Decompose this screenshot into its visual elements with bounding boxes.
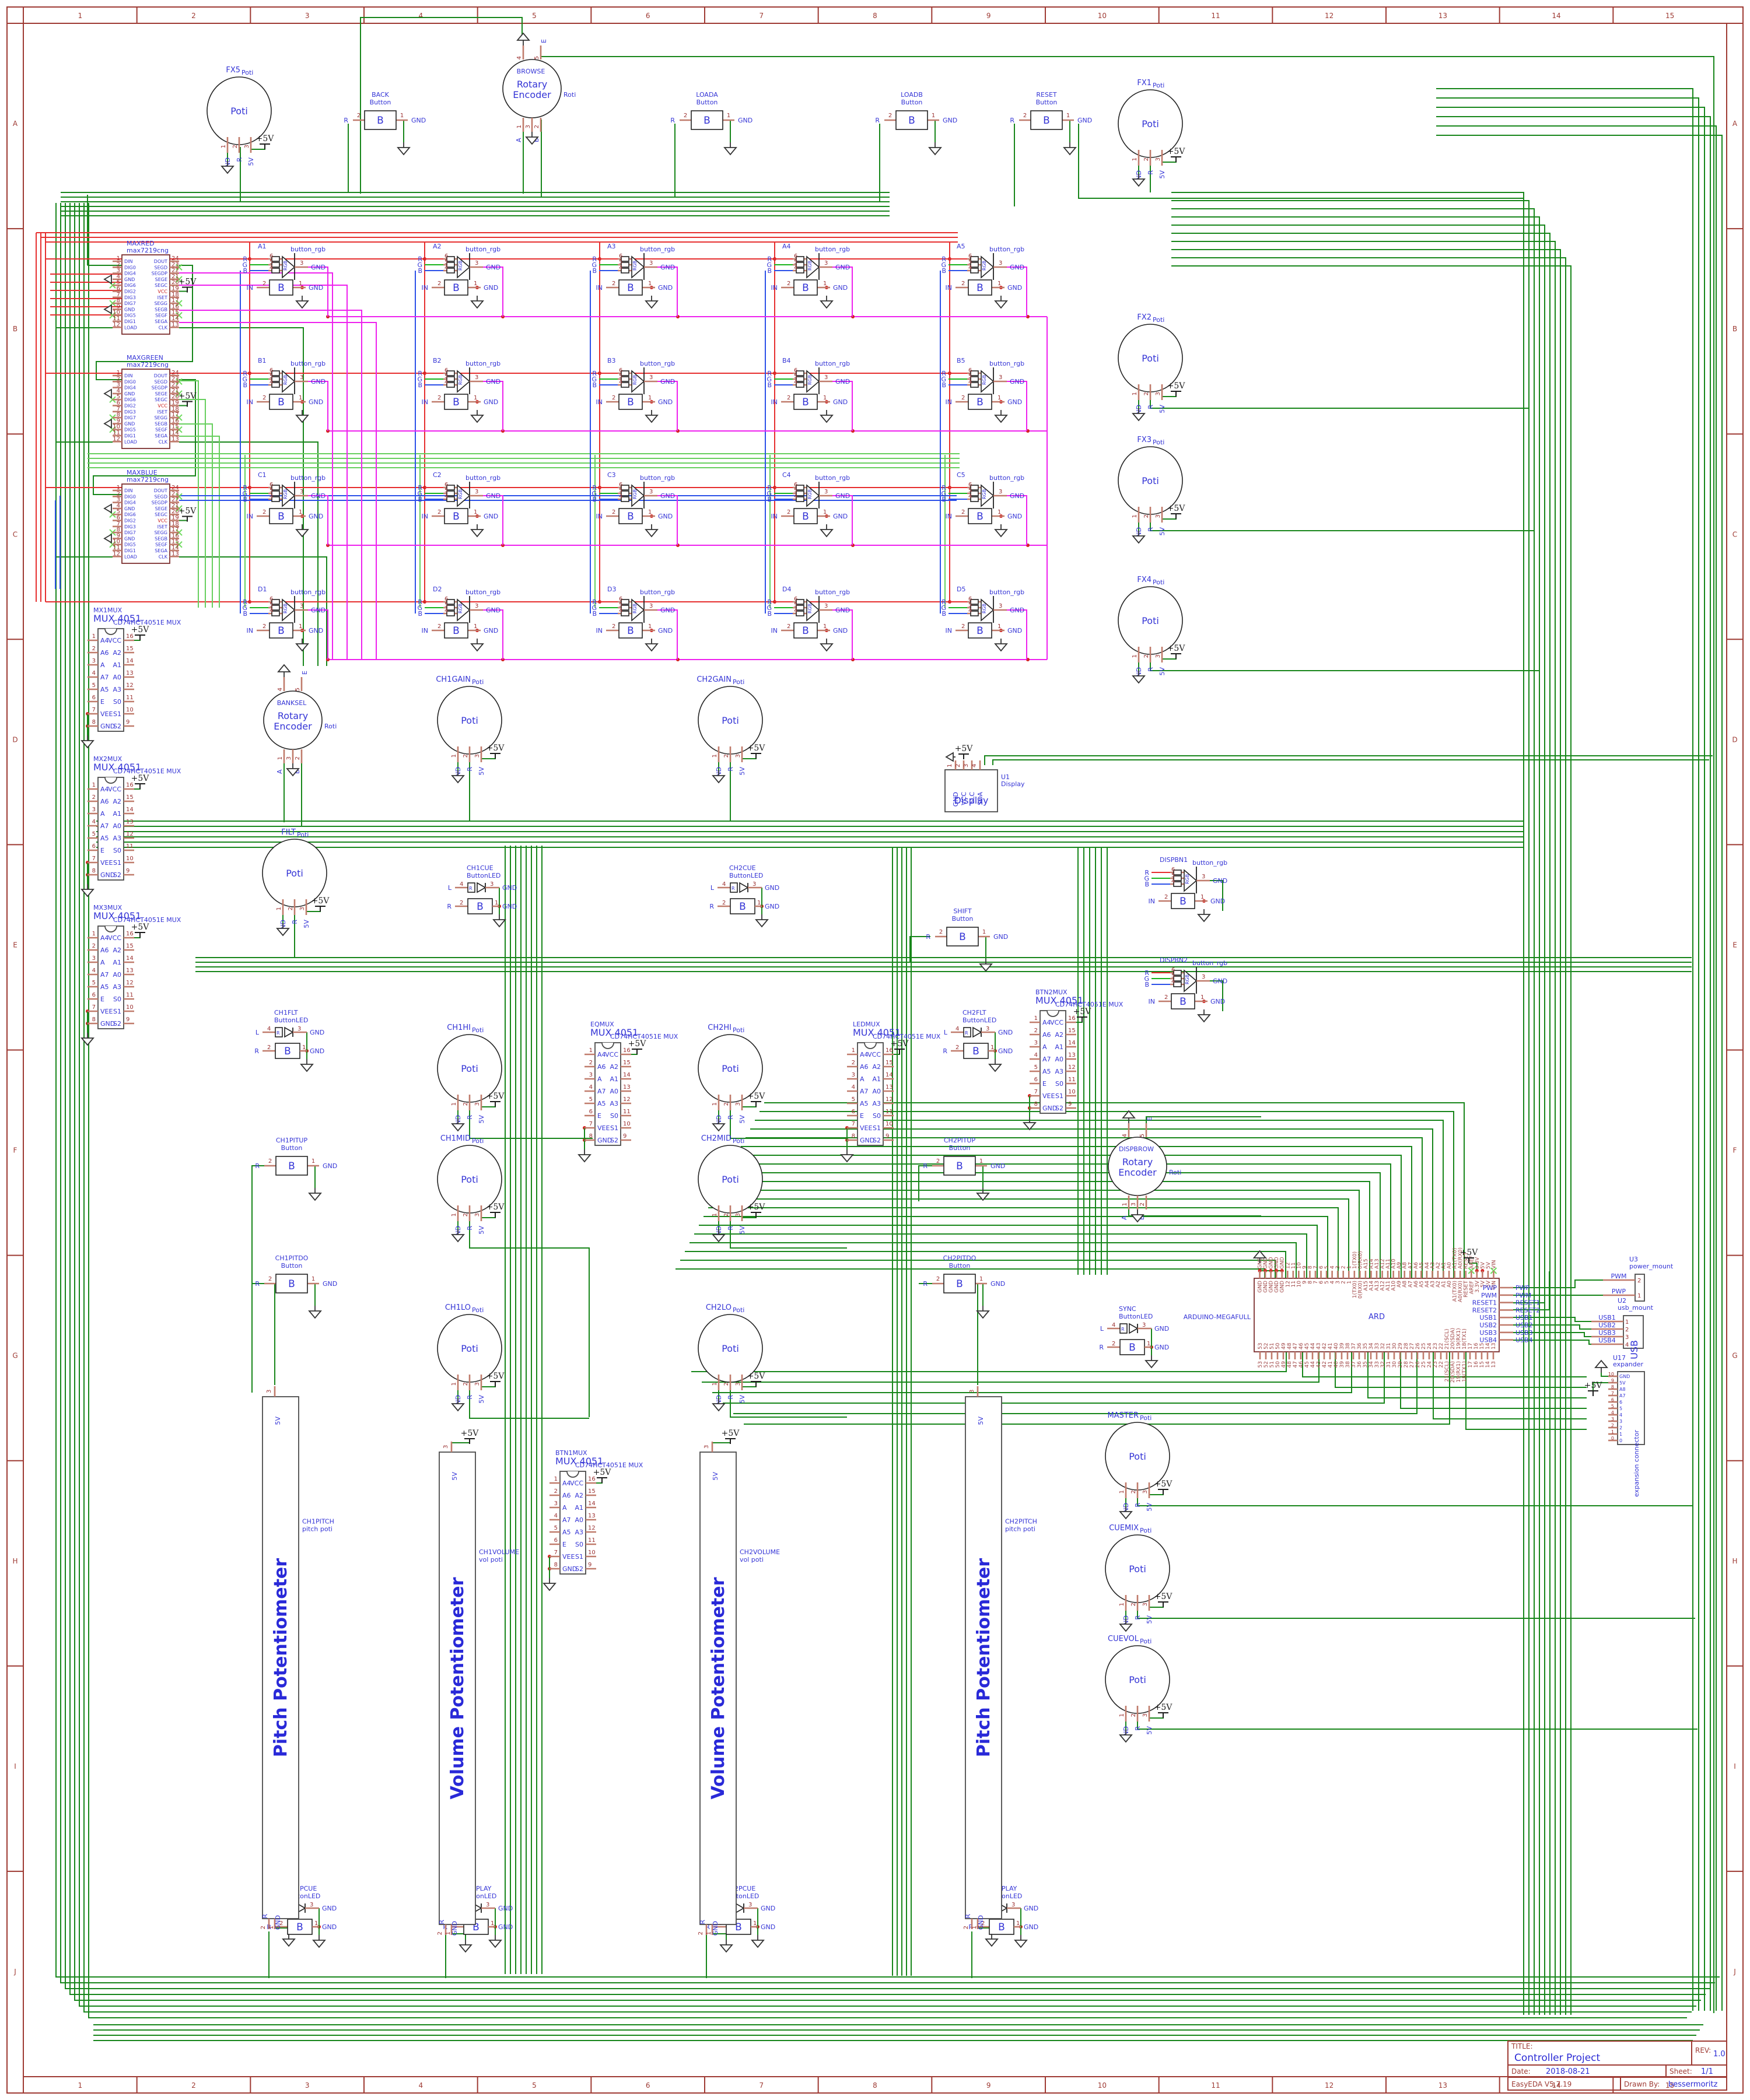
mux4051-mx1mux[interactable]: MX1MUXMUX 4051CD74HCT4051E MUX1A416VCC2A… (82, 606, 181, 748)
poti-master[interactable]: PotiMASTERPoti1GND2R35V+5V (1105, 1411, 1172, 1519)
pin-name: R (466, 767, 474, 772)
button-ch1pitup[interactable]: CH1PITUPButtonB21RGND (255, 1137, 337, 1200)
pin-number: 3 (752, 881, 756, 888)
wire-segment[interactable] (1150, 652, 1539, 671)
pin-name: DIG5 (124, 313, 136, 318)
pin-number: 2 (787, 623, 790, 630)
rgb-button-dispbn1[interactable]: DISPBN1button_rgb6R5G4BRGB3GNDB21INGND (1144, 856, 1227, 921)
wire-segment[interactable] (1007, 381, 1027, 431)
components-layer: PotiFX5Poti1GND2R35V+5VPotiFX1Poti1GND2R… (82, 33, 1674, 1952)
slider-value: Volume Potentiometer (708, 1577, 729, 1799)
pin-number: 15 (588, 1488, 596, 1495)
rgb-button-c5[interactable]: C5button_rgb6R5G4BRGB3GNDB21INGND (941, 471, 1024, 537)
gnd-symbol (720, 1940, 732, 1952)
pin-name: DIG7 (124, 530, 136, 535)
wire-segment[interactable] (179, 399, 205, 608)
poti-cuemix[interactable]: PotiCUEMIXPoti1GND2R35V+5V (1105, 1524, 1172, 1631)
pin-name: GND (486, 492, 501, 500)
pin-name: R (1134, 1615, 1142, 1620)
ruler-row-label: H (12, 1557, 17, 1565)
designator: CH1PITUP (276, 1137, 308, 1144)
ruler-row-label: G (12, 1352, 17, 1360)
pin-name: S1 (113, 710, 121, 718)
button-ch1pitdo[interactable]: CH1PITDOButtonB21RGND (255, 1254, 337, 1318)
designator: CH2VOLUME (740, 1548, 780, 1556)
wire-segment[interactable] (750, 1129, 1433, 1278)
expansion-connector-u17[interactable]: U17expander10GND95V8A87A766554433221100e… (1584, 1354, 1644, 1497)
pin-name: A0 (113, 971, 121, 979)
pin-name: GND (1007, 627, 1022, 634)
rgb-button-d1[interactable]: D1button_rgb6R5G4BRGB3GNDB21INGND (242, 586, 325, 651)
poti-cuevol[interactable]: PotiCUEVOLPoti1GND2R35V+5V (1105, 1635, 1172, 1742)
rgb-button-a2[interactable]: A2button_rgb6R5G4BRGB3GNDB21INGND (417, 243, 501, 308)
pin-name: 1(TX0) (1352, 1251, 1358, 1269)
rgb-button-c4[interactable]: C4button_rgb6R5G4BRGB3GNDB21INGND (766, 471, 850, 537)
wire-segment[interactable] (1150, 390, 1529, 408)
wire-segment[interactable] (470, 1382, 589, 1418)
button-led-ch1cue[interactable]: CH1CUEButtonLEDL4R3GNDR2B1GND (447, 864, 517, 927)
pin-name: GND (124, 421, 135, 426)
wire-segment[interactable] (1162, 654, 1176, 659)
part-label: Roti (324, 723, 337, 730)
pin-name: GND (658, 284, 673, 292)
part-name: button_rgb (290, 360, 325, 367)
rgb-button-a1[interactable]: A1button_rgb6R5G4BRGB3GNDB21INGND (242, 243, 325, 308)
part-name: button_rgb (1192, 859, 1227, 867)
rgb-button-d2[interactable]: D2button_rgb6R5G4BRGB3GNDB21INGND (417, 586, 501, 651)
part-name: Encoder (274, 721, 312, 732)
wire-segment[interactable] (832, 610, 852, 660)
plus5v-label: +5V (1167, 644, 1186, 653)
pin-name: 1 (1346, 1281, 1352, 1284)
wire-segment[interactable] (1007, 496, 1027, 545)
pin-name: 18(TX1) (1462, 1328, 1468, 1349)
wire-segment[interactable] (596, 1478, 602, 1483)
pin-name: 26 (1415, 1361, 1421, 1368)
wire-segment[interactable] (712, 1439, 730, 1443)
wire-segment[interactable] (1076, 1018, 1082, 1022)
pin-number: 8 (1034, 1101, 1038, 1107)
wire-segment[interactable] (1137, 1712, 1697, 1729)
gnd-symbol (452, 770, 464, 783)
pin-number: 10 (588, 1549, 596, 1556)
plus5v-symbol: +5V (1584, 1381, 1603, 1396)
gnd-symbol (646, 410, 657, 422)
button-symbol: B (802, 625, 809, 637)
pin-name: A15 (1363, 1258, 1369, 1269)
rgb-button-dispbn2[interactable]: DISPBN2button_rgb6R5G4BRGB3GNDB21INGND (1144, 956, 1227, 1022)
button-ch2pitdo[interactable]: CH2PITDOButtonB21RGND (923, 1254, 1005, 1318)
wire-segment[interactable] (1401, 1352, 1587, 1408)
plus5v-symbol: +5V (593, 1468, 612, 1483)
pin-name: 5V (977, 1417, 985, 1425)
button-led-sync[interactable]: SYNCButtonLEDL4R3GNDR2B1GND (1099, 1305, 1169, 1368)
pin-name: DIG4 (124, 271, 136, 276)
rotary-encoder-banksel[interactable]: BANKSELRotaryEncoderRoti45E132AB (264, 665, 337, 776)
pin-name: SEGB (155, 536, 167, 541)
pin-name: L (1100, 1325, 1104, 1333)
wire-segment[interactable] (1149, 1490, 1163, 1495)
button-led-ch1flt[interactable]: CH1FLTButtonLEDL4R3GNDR2B1GND (254, 1009, 324, 1071)
wire-segment[interactable] (483, 381, 503, 431)
poti-value: Poti (1142, 615, 1159, 626)
wire-segment[interactable] (1146, 1117, 1261, 1136)
pin-number: 7 (1034, 1089, 1038, 1095)
poti-fx3[interactable]: PotiFX3Poti1GND2R35V+5V (1118, 436, 1185, 543)
pin-number: 3 (735, 1382, 741, 1386)
poti-fx2[interactable]: PotiFX2Poti1GND2R35V+5V (1118, 313, 1185, 420)
pin-name: GND (124, 506, 135, 511)
plus5v-symbol: +5V (747, 1202, 766, 1218)
wire-segment[interactable] (134, 784, 140, 789)
rgb-button-d5[interactable]: D5button_rgb6R5G4BRGB3GNDB21INGND (941, 586, 1024, 651)
wire-segment[interactable] (481, 1213, 495, 1218)
wire-segment[interactable] (1171, 250, 1560, 2015)
pin-number: 2 (939, 929, 943, 935)
pin-number: 7 (554, 1549, 558, 1556)
pin-number: 3 (474, 754, 481, 758)
pin-number: 1 (1200, 994, 1204, 1001)
wire-segment[interactable] (832, 267, 852, 317)
rgb-button-a4[interactable]: A4button_rgb6R5G4BRGB3GNDB21INGND (766, 243, 850, 308)
wire-segment[interactable] (1601, 1373, 1608, 1376)
pin-number: 9 (126, 1016, 129, 1023)
wire-segment[interactable] (1171, 201, 1529, 2015)
rgb-button-c2[interactable]: C2button_rgb6R5G4BRGB3GNDB21INGND (417, 471, 501, 537)
pin-name: SEGDP (152, 271, 167, 276)
pin-name: S0 (610, 1112, 618, 1120)
wire-segment[interactable] (723, 1352, 1384, 1403)
pin-number: 2 (1143, 654, 1150, 658)
gnd-up-symbol (278, 665, 290, 677)
wire-segment[interactable] (685, 1251, 1286, 1278)
pin-name: R (727, 1115, 734, 1120)
wire-segment[interactable] (179, 517, 187, 521)
rgb-button-b4[interactable]: B4button_rgb6R5G4BRGB3GNDB21INGND (766, 357, 850, 422)
pin-number: 2 (1625, 1327, 1629, 1333)
pin-number: 2 (612, 281, 615, 287)
wire-segment[interactable] (832, 381, 852, 431)
pin-number: 8 (852, 1133, 855, 1140)
poti-ch1gain[interactable]: PotiCH1GAINPoti1GND2R35V+5V (436, 675, 505, 783)
pin-number: 11 (588, 1537, 596, 1544)
wire-segment[interactable] (452, 1439, 470, 1443)
pin-number: 2 (612, 395, 615, 401)
slide-potentiometer-ch1pitch[interactable]: Pitch Potentiometer35V21RGNDCH1PITCHpitc… (260, 1386, 334, 1946)
wire-segment[interactable] (252, 1166, 264, 1393)
wire-segment[interactable] (308, 381, 328, 431)
pin-name: A1 (113, 810, 121, 818)
wire-segment[interactable] (1007, 267, 1027, 317)
part-name: Poti (1140, 1527, 1151, 1534)
wire-segment[interactable] (1137, 1601, 1695, 1618)
pin-number: 3 (999, 260, 1002, 267)
pin-name: A (1121, 1215, 1128, 1220)
gnd-symbol (1133, 408, 1144, 420)
gnd-symbol (460, 1940, 471, 1952)
pin-number: 3 (824, 603, 828, 609)
wire-segment[interactable] (1171, 233, 1550, 2015)
wire-segment[interactable] (306, 907, 320, 911)
pin-name: 5 (1324, 1281, 1330, 1284)
pin-number: 4 (968, 493, 972, 500)
wire-segment[interactable] (179, 402, 187, 406)
wire-segment[interactable] (481, 1102, 495, 1107)
designator: FX1 (1137, 79, 1151, 87)
button-led-ch2flt[interactable]: CH2FLTButtonLEDL4R3GNDR2B1GND (943, 1009, 1013, 1071)
arduino-mega-ard[interactable]: ARDARDUINO-MEGAFULLGNDGNDGNDGNDGNDGNDGND… (1184, 1247, 1540, 1383)
wire-segment[interactable] (1436, 117, 1710, 2011)
button-shift[interactable]: SHIFTButtonB21RGND (926, 907, 1008, 971)
rgb-button-a5[interactable]: A5button_rgb6R5G4BRGB3GNDB21INGND (941, 243, 1024, 308)
wire-segment[interactable] (1171, 266, 1571, 2015)
plus5v-label: +5V (178, 278, 197, 287)
wire-segment[interactable] (702, 1352, 1319, 1382)
gnd-symbol (977, 1306, 989, 1318)
wire-segment[interactable] (1007, 610, 1027, 660)
mux4051-ledmux[interactable]: LEDMUXMUX 4051CD74HCT4051E MUX1A416VCC2A… (841, 1021, 941, 1162)
poti-value: Poti (1142, 118, 1159, 129)
wire-segment[interactable] (742, 754, 756, 759)
rgb-button-b2[interactable]: B2button_rgb6R5G4BRGB3GNDB21INGND (417, 357, 501, 422)
pin-name: 30 (1392, 1342, 1398, 1349)
wire-segment[interactable] (741, 1147, 1412, 1278)
pin-name: R (1147, 667, 1154, 672)
pin-number: 2 (612, 509, 615, 516)
wire-segment[interactable] (742, 1382, 756, 1387)
wire-segment[interactable] (1171, 192, 1524, 2015)
poti-ch2lo[interactable]: PotiCH2LOPoti1GND2R35V+5V (698, 1303, 765, 1411)
ruler-col-label: 8 (873, 12, 877, 20)
wire-segment[interactable] (1171, 217, 1539, 2015)
pin-name: A15 (1363, 1281, 1369, 1291)
wire-segment[interactable] (1150, 512, 1534, 531)
rgb-button-b3[interactable]: B3button_rgb6R5G4BRGB3GNDB21INGND (591, 357, 675, 422)
gnd-symbol (1198, 909, 1210, 921)
net-name: USB3 (1479, 1329, 1497, 1337)
pin-number: 2 (534, 125, 540, 128)
designator: SYNC (1119, 1305, 1136, 1313)
poti-ch1hi[interactable]: PotiCH1HIPoti1GND2R35V+5V (437, 1023, 505, 1131)
pin-number: 2 (463, 1102, 469, 1106)
pin-number: 1 (712, 1102, 718, 1106)
wire-segment[interactable] (631, 1050, 637, 1054)
pin-name: 10 (1296, 1262, 1302, 1269)
pin-number: 2 (1143, 514, 1150, 518)
pin-name: GND (484, 627, 498, 634)
drawn-by-label: Drawn By: (1624, 2080, 1660, 2088)
pin-number: 12 (885, 1096, 893, 1103)
mux4051-mx3mux[interactable]: MX3MUXMUX 4051CD74HCT4051E MUX1A416VCC2A… (82, 904, 181, 1045)
poti-ch2hi[interactable]: PotiCH2HIPoti1GND2R35V+5V (698, 1023, 765, 1131)
pin-name: A (515, 138, 523, 142)
pin-number: 3 (1034, 1040, 1038, 1046)
plus5v-symbol: +5V (1073, 1007, 1092, 1022)
wire-segment[interactable] (713, 1199, 1349, 1278)
pin-name: 18(TX1) (1462, 1361, 1468, 1382)
usb-mount-u2[interactable]: U2usb_mountUSB11USB22USB33USB44USB (1591, 1297, 1654, 1359)
pin-number: 2 (1637, 1278, 1641, 1284)
wire-segment[interactable] (993, 760, 1709, 765)
button-symbol: B (739, 901, 746, 913)
rotary-encoder-dispbrow[interactable]: DISPBROWRotaryEncoderRoti45E132AB (1108, 1111, 1181, 1222)
wire-segment[interactable] (308, 267, 328, 317)
power-mount-u3[interactable]: U3power_mountPWM2PWP1 (1603, 1256, 1674, 1301)
wire-segment[interactable] (691, 1352, 1286, 1372)
button-back[interactable]: BACKButtonB21RGND (344, 91, 426, 155)
rgb-button-d4[interactable]: D4button_rgb6R5G4BRGB3GNDB21INGND (766, 586, 850, 651)
poti-ch2gain[interactable]: PotiCH2GAINPoti1GND2R35V+5V (696, 675, 765, 783)
pin-name: R (727, 1226, 734, 1230)
mux4051-btn2mux[interactable]: BTN2MUXMUX 4051CD74HCT4051E MUX1A416VCC2… (1024, 988, 1123, 1130)
max7219-maxgreen[interactable]: MAXGREENmax7219cng1DIN24DOUT2DIG023SEGD3… (104, 354, 197, 448)
drawn-by-value: bessermoritz (1668, 2080, 1718, 2089)
slide-potentiometer-ch2volume[interactable]: Volume Potentiometer35V+5V21RGNDCH2VOLUM… (698, 1429, 780, 1952)
wire-segment[interactable] (483, 496, 503, 545)
pin-name: 5V (478, 1115, 485, 1124)
pin-number: 2 (268, 1158, 272, 1165)
wire-segment[interactable] (179, 557, 327, 666)
pin-number: 3 (1202, 874, 1205, 880)
pin-number: 1 (1147, 1341, 1150, 1347)
wire-segment[interactable] (919, 1166, 932, 1201)
poti-value: Poti (1129, 1674, 1146, 1685)
wire-segment[interactable] (65, 203, 1710, 1989)
wire-segment[interactable] (1149, 1713, 1163, 1718)
wire-segment[interactable] (134, 636, 140, 640)
max7219-maxblue[interactable]: MAXBLUEmax7219cng1DIN24DOUT2DIG023SEGD3D… (104, 469, 197, 563)
pin-number: 4 (794, 608, 797, 614)
mux4051-eqmux[interactable]: EQMUXMUX 4051CD74HCT4051E MUX1A416VCC2A6… (579, 1021, 678, 1162)
pin-name: 35 (1363, 1343, 1368, 1349)
pin-name: E (100, 847, 104, 854)
rotary-encoder-browse[interactable]: BROWSERotaryEncoderRoti45E132AB (503, 33, 576, 144)
wire-segment[interactable] (481, 754, 495, 759)
poti-ch1lo[interactable]: PotiCH1LOPoti1GND2R35V+5V (437, 1303, 505, 1411)
wire-segment[interactable] (1210, 981, 1223, 1011)
rgb-button-c1[interactable]: C1button_rgb6R5G4BRGB3GNDB21INGND (242, 471, 325, 537)
pin-name: 42 (1322, 1361, 1328, 1368)
button-loada[interactable]: LOADAButtonB21RGND (670, 91, 752, 155)
wire-segment[interactable] (1162, 514, 1176, 519)
rgb-button-d3[interactable]: D3button_rgb6R5G4BRGB3GNDB21INGND (591, 586, 675, 651)
pin-name: 43 (1316, 1361, 1322, 1368)
pin-number: 8 (589, 1133, 593, 1140)
wire-segment[interactable] (483, 267, 503, 317)
poti-filt[interactable]: PotiFILTPoti1GND2R35V+5V (262, 828, 330, 935)
rev-label: REV: (1695, 2046, 1711, 2055)
button-reset[interactable]: RESETButtonB21RGND (1010, 91, 1092, 155)
pin-name: A5 (1419, 1262, 1424, 1269)
pin-number: 1 (299, 509, 302, 516)
pin-name: GND (765, 884, 779, 892)
net-name: USB1 (1479, 1314, 1497, 1321)
wire-segment[interactable] (79, 203, 1696, 2006)
max7219-maxred[interactable]: MAXREDmax7219cng1DIN24DOUT2DIG023SEGD3DI… (104, 240, 197, 334)
pin-number: 1 (400, 113, 404, 119)
button-led-ch2cue[interactable]: CH2CUEButtonLEDL4R3GNDR2B1GND (709, 864, 779, 927)
designator: B3 (607, 357, 616, 364)
wire-segment[interactable] (694, 1234, 1307, 1278)
pin-name: B (418, 381, 422, 389)
wire-segment[interactable] (1162, 157, 1176, 162)
wire-segment[interactable] (1210, 881, 1223, 911)
pin-name: 15 (1479, 1361, 1485, 1368)
wire-segment[interactable] (1171, 258, 1566, 2015)
wire-segment[interactable] (657, 267, 677, 317)
pin-name: 5 (1619, 1406, 1622, 1411)
wire-segment[interactable] (832, 496, 852, 545)
wire-segment[interactable] (481, 1382, 495, 1387)
rgb-button-b5[interactable]: B5button_rgb6R5G4BRGB3GNDB21INGND (941, 357, 1024, 422)
button-loadb[interactable]: LOADBButtonB21RGND (875, 91, 957, 155)
mux4051-btn1mux[interactable]: BTN1MUXMUX 4051CD74HCT4051E MUX1A416VCC2… (544, 1449, 643, 1590)
wire-segment[interactable] (657, 610, 677, 660)
wire-segment[interactable] (134, 933, 140, 938)
designator: CH2FLT (963, 1009, 986, 1016)
wire-segment[interactable] (179, 436, 219, 608)
wire-segment[interactable] (251, 145, 265, 149)
wire-segment[interactable] (742, 1102, 756, 1107)
rgb-button-a3[interactable]: A3button_rgb6R5G4BRGB3GNDB21INGND (591, 243, 675, 308)
pin-number: 14 (885, 1072, 893, 1078)
pin-name: 5V (738, 1115, 746, 1124)
pin-number: 1 (1016, 1920, 1020, 1927)
pin-number: 1 (823, 623, 827, 630)
pin-name: SEGB (155, 307, 167, 312)
pin-number: 4 (516, 56, 523, 59)
pin-name: GND (1280, 1281, 1286, 1293)
rgb-button-b1[interactable]: B1button_rgb6R5G4BRGB3GNDB21INGND (242, 357, 325, 422)
wire-segment[interactable] (657, 496, 677, 545)
display-u1[interactable]: 1GND2VCC3SLC4SDADisplayU1Display+5V (945, 744, 1025, 812)
gnd-symbol (821, 296, 832, 308)
wire-segment[interactable] (1149, 1603, 1163, 1607)
wire-segment[interactable] (1171, 241, 1555, 2015)
pin-number: 2 (1164, 894, 1168, 900)
wire-segment[interactable] (657, 381, 677, 431)
wire-segment[interactable] (179, 288, 187, 292)
pin-number: 3 (1155, 654, 1161, 658)
slide-potentiometer-ch2pitch[interactable]: Pitch Potentiometer35V21RGNDCH2PITCHpitc… (963, 1386, 1037, 1946)
slide-potentiometer-ch1volume[interactable]: Volume Potentiometer35V+5V21RGNDCH1VOLUM… (437, 1429, 519, 1952)
poti-fx1[interactable]: PotiFX1Poti1GND2R35V+5V (1118, 79, 1185, 186)
designator: CH2MID (701, 1134, 731, 1143)
pin-name: A7 (860, 1088, 869, 1095)
wire-segment[interactable] (1137, 1488, 1693, 1506)
pin-name: A5 (562, 1528, 571, 1536)
wire-segment[interactable] (1436, 89, 1693, 2011)
poti-fx4[interactable]: PotiFX4Poti1GND2R35V+5V (1118, 576, 1185, 683)
poti-ch1mid[interactable]: PotiCH1MIDPoti1GND2R35V+5V (437, 1134, 505, 1242)
gnd-symbol (1198, 1009, 1210, 1022)
pin-number: 4 (460, 881, 463, 888)
pin-name: A0(RX0) (1458, 1281, 1464, 1302)
wire-segment[interactable] (1162, 392, 1176, 397)
wire-segment[interactable] (1436, 98, 1699, 2011)
pin-name: VCC (570, 1480, 583, 1487)
pin-number: 3 (92, 807, 96, 813)
wire-segment[interactable] (483, 610, 503, 660)
pin-name: A7 (597, 1088, 606, 1095)
wire-segment[interactable] (61, 203, 1715, 1983)
gnd-symbol (296, 296, 308, 308)
rgb-label: RGB (283, 375, 288, 385)
pin-name: IN (596, 284, 603, 292)
rgb-button-c3[interactable]: C3button_rgb6R5G4BRGB3GNDB21INGND (591, 471, 675, 537)
net-name: RESET2 (1472, 1306, 1497, 1314)
ruler-row-label: D (12, 735, 17, 744)
